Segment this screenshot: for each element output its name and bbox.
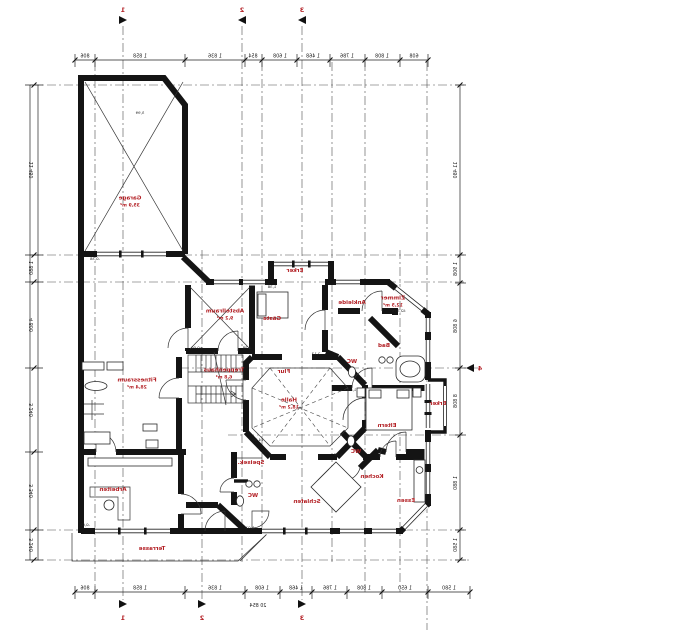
dimension-text: 1 468 (289, 586, 303, 592)
annotation-text: 1,01 (245, 525, 254, 530)
garage-label: Garage (118, 196, 141, 202)
flur-label: Flur (278, 369, 291, 375)
eltern-label: Eltern (378, 423, 397, 429)
terrasse-label: Terrasse (138, 546, 165, 552)
schlafen-label: Schlafen (293, 499, 320, 505)
annotation-text: ±0,00 (191, 345, 203, 350)
dimension-text: 806 (80, 54, 89, 60)
annotation-text: 1,88 (347, 387, 356, 392)
dimension-text: 1 650 (398, 586, 412, 592)
dimension-text: 1 468 (306, 54, 320, 60)
dimension-text: 1 858 (133, 586, 147, 592)
dimension-text: 1 880 (453, 476, 459, 490)
dimension-text: 1 786 (323, 586, 337, 592)
wc-bad-label: WC (347, 359, 357, 365)
annotation-text: 0,88 (333, 452, 342, 457)
annotation-text: -0,02 (79, 522, 90, 527)
abstellraum-label: Abstellraum (206, 309, 244, 315)
dimension-text: 1 908 (453, 262, 459, 276)
fitness-label: 28,4 m² (127, 385, 147, 391)
dimension-text: 854 (248, 54, 257, 60)
floor-plan-canvas: Garage35,9 m²Fitnessraum28,4 m²ArbeitenT… (0, 0, 700, 635)
dimension-text: 1 786 (340, 54, 354, 60)
erker-top-label: Erker (286, 268, 303, 274)
dimension-text: 1 858 (133, 54, 147, 60)
dimension-text: 1 808 (375, 54, 389, 60)
fitness-label: Fitnessraum (117, 378, 156, 384)
section-marker-label: 3 (300, 614, 305, 622)
essen-label: Essen (397, 498, 415, 504)
gaeste-label: Gäste (263, 316, 281, 322)
section-marker-label: 2 (240, 6, 245, 14)
annotation-text: 2,13 (311, 351, 320, 356)
section-marker-label: 2 (200, 614, 205, 622)
erker-right-label: Erker (429, 401, 446, 407)
dimension-text: 3 240 (29, 403, 35, 417)
dimension-text: 8 808 (453, 394, 459, 408)
dimension-overall-text: 20 854 (250, 603, 267, 609)
halle-label: 18,2 m² (279, 405, 299, 411)
dimension-text: 11 480 (453, 162, 459, 179)
garage-label: 35,9 m² (120, 203, 140, 209)
terrace-outline (72, 533, 268, 561)
annotation-text: 1,38 (267, 284, 276, 289)
dimension-text: 608 (409, 54, 418, 60)
dimension-text: 11 480 (29, 162, 35, 179)
annotation-text: 5,99 (135, 110, 144, 115)
dimension-text: 806 (80, 586, 89, 592)
treppenhaus-label: 6,8 m² (216, 375, 233, 381)
dimension-text: 3 340 (29, 484, 35, 498)
annotation-text: -0,38 (89, 256, 100, 261)
ankleide-label: Ankleide (338, 300, 366, 306)
abstellraum-label: 9,2 m² (217, 316, 234, 322)
dimension-text: 6 808 (453, 319, 459, 333)
annotation-text: 42,5 m³ (390, 308, 406, 313)
bad-label: Bad (378, 343, 390, 349)
dimension-chains (25, 54, 473, 599)
dimension-text: 1 580 (442, 586, 456, 592)
dimension-text: 4 800 (29, 318, 35, 332)
dimension-text: 1 580 (453, 538, 459, 552)
dimension-text: 1 608 (255, 586, 269, 592)
speisekammer-label: Speisek. (238, 460, 265, 466)
section-marker-label: 4 (477, 365, 482, 373)
annotation-text: 14,30 (252, 437, 264, 442)
halle-label: Halle (281, 398, 297, 404)
dimension-text: 1 836 (208, 586, 222, 592)
arbeiten-label: Arbeiten (99, 487, 126, 493)
dimension-text: 3 240 (29, 538, 35, 552)
wc-bottom-label: WC (248, 493, 258, 499)
dimension-text: 1 608 (273, 54, 287, 60)
annotation-text: 4,38 (242, 345, 251, 350)
dimension-text: 1 880 (29, 261, 35, 275)
floor-plan-page: Garage35,9 m²Fitnessraum28,4 m²ArbeitenT… (0, 0, 700, 635)
zimmer-label: Zimmer (381, 296, 405, 302)
section-marker-label: 3 (300, 6, 305, 14)
wc-mid-label: WC (351, 449, 361, 455)
dimension-text: 1 836 (208, 54, 222, 60)
treppenhaus-label: Treppenhaus (203, 368, 244, 374)
section-marker-label: 1 (120, 614, 125, 622)
staircase (188, 352, 243, 405)
section-marker-label: 1 (120, 6, 125, 14)
kochen-label: Kochen (360, 474, 383, 480)
dimension-text: 1 808 (357, 586, 371, 592)
